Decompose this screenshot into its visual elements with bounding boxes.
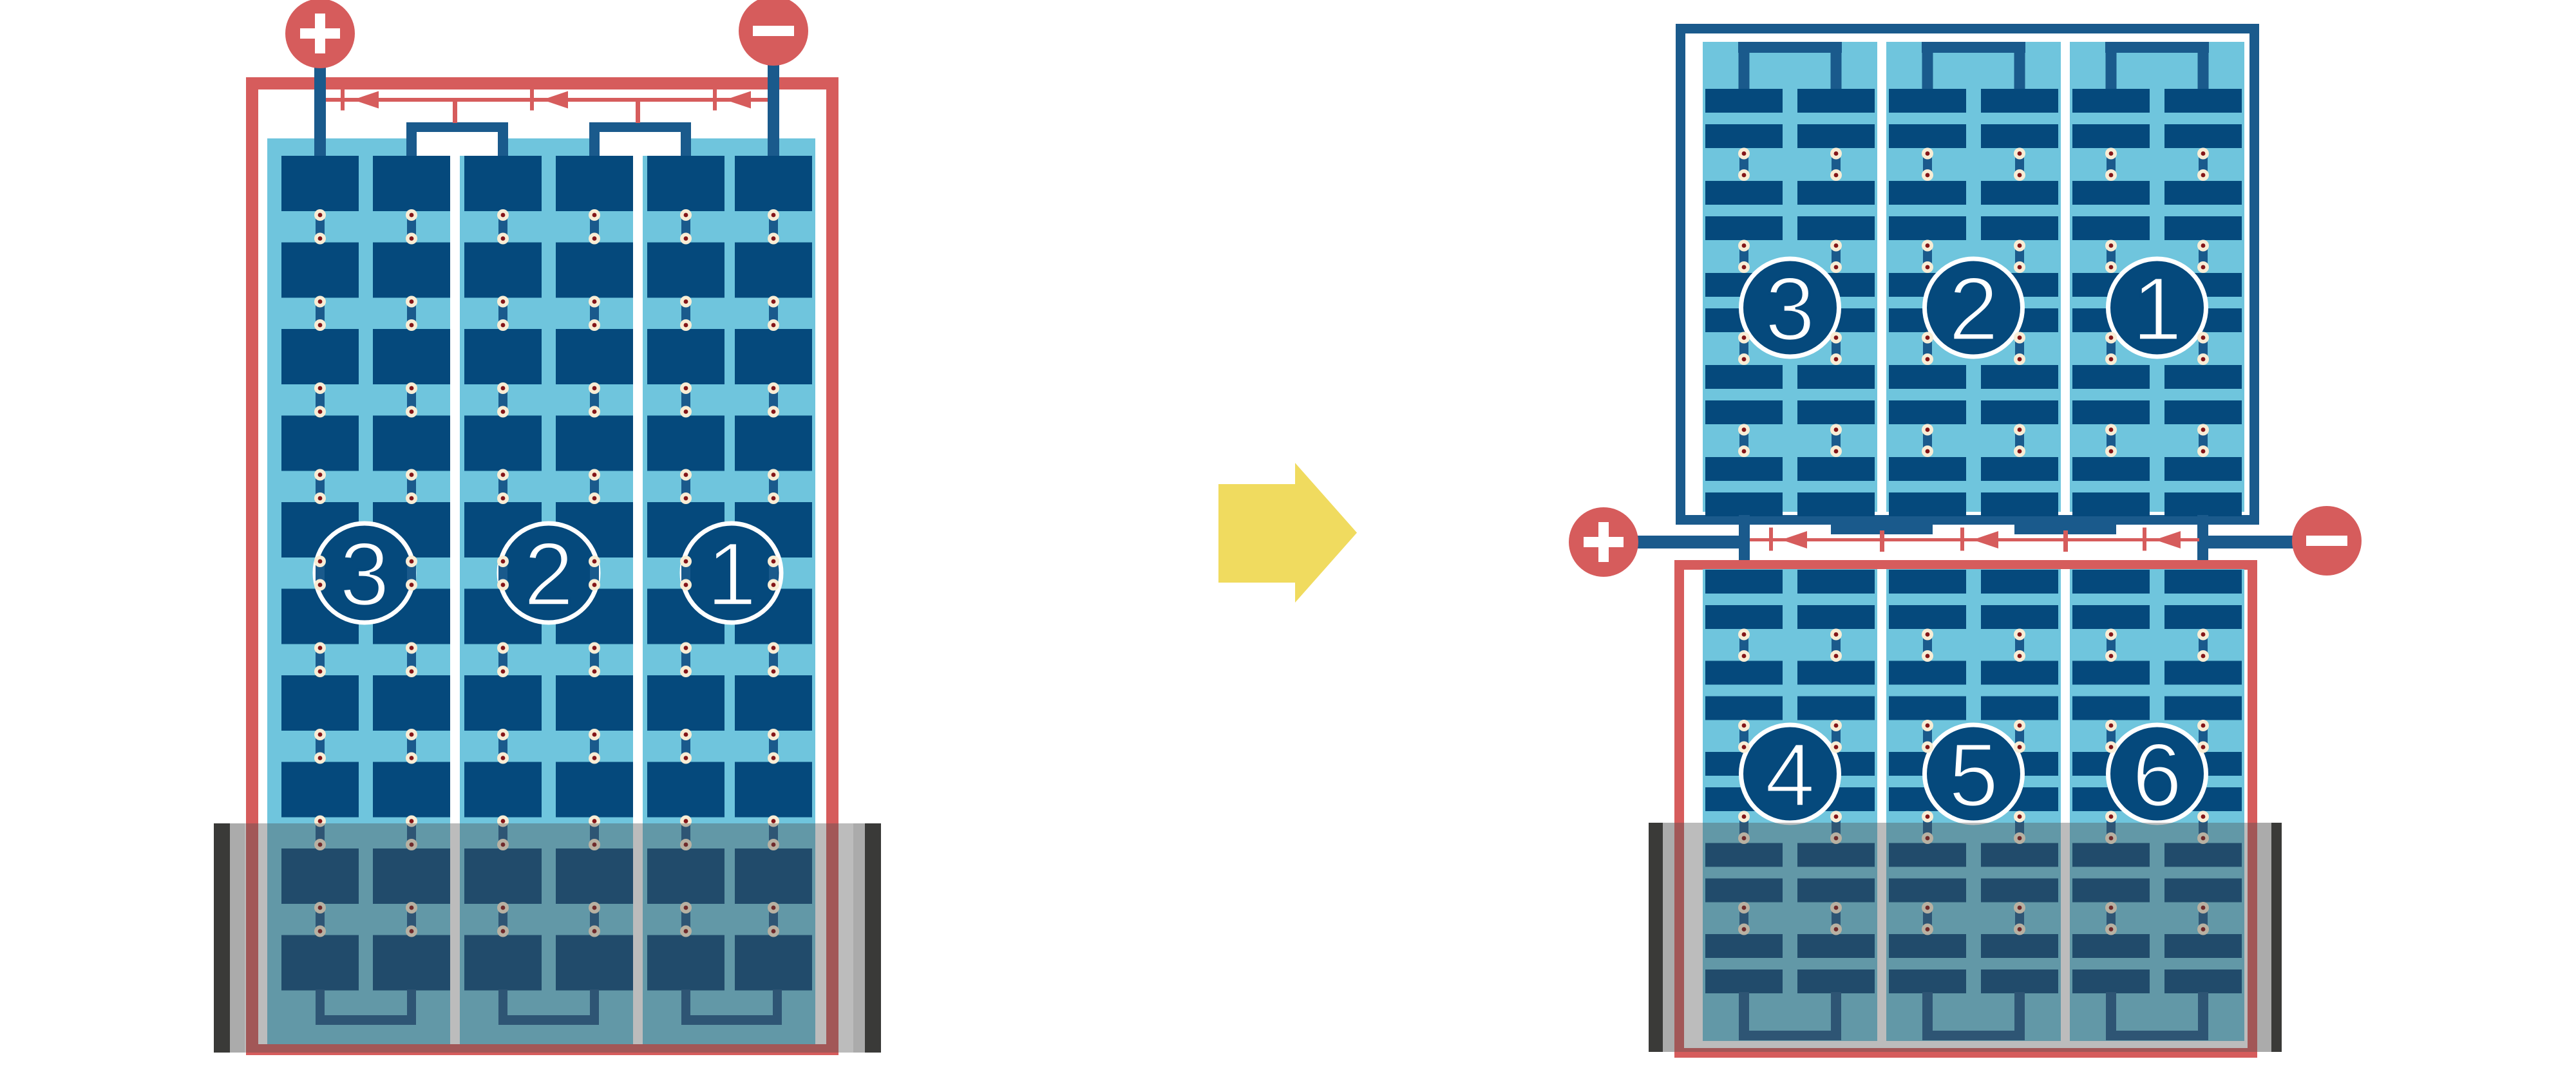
svg-text:3: 3	[339, 523, 390, 624]
svg-text:2: 2	[524, 523, 574, 624]
svg-text:5: 5	[1949, 724, 1999, 825]
svg-text:6: 6	[2132, 724, 2183, 825]
svg-text:3: 3	[1765, 258, 1815, 359]
svg-text:4: 4	[1765, 724, 1815, 825]
svg-text:1: 1	[2132, 258, 2183, 359]
svg-text:1: 1	[706, 523, 757, 624]
svg-text:2: 2	[1949, 258, 1999, 359]
